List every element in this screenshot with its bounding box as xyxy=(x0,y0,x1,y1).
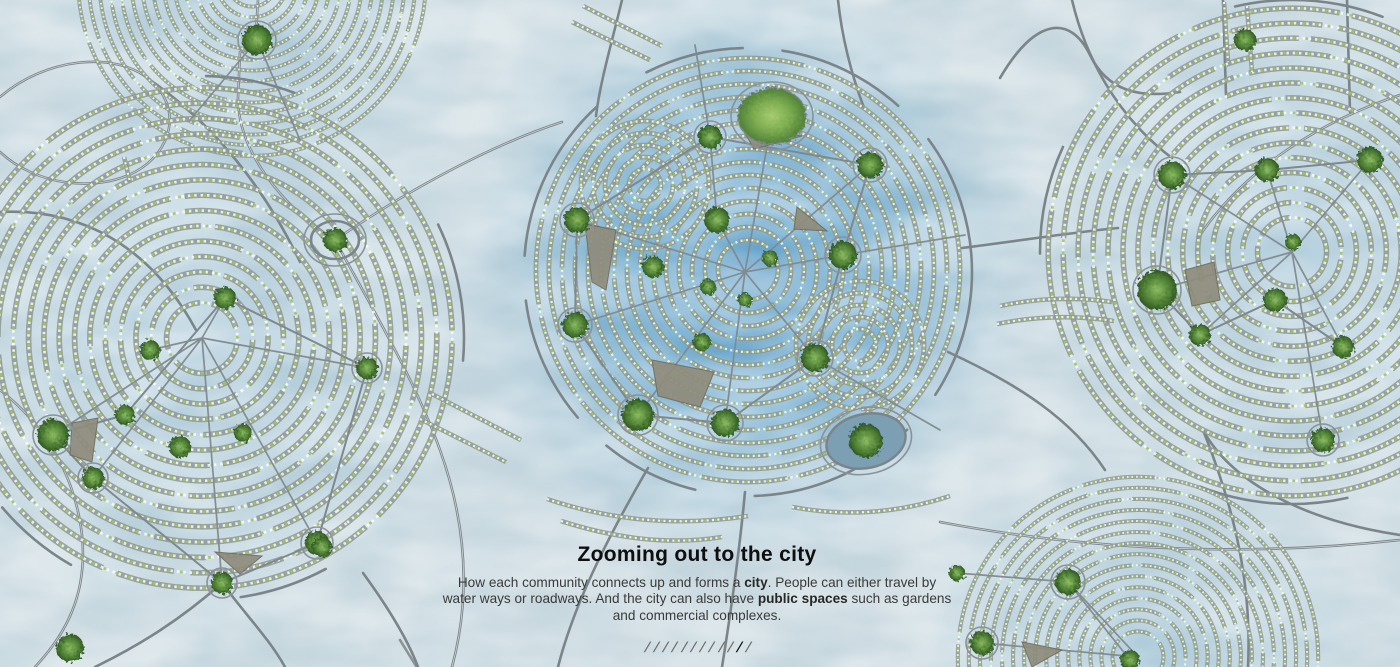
caption-body: How each community connects up and forms… xyxy=(441,575,953,626)
caption-title: Zooming out to the city xyxy=(357,543,1037,567)
caption-seg-0: How each community connects up and forms… xyxy=(458,575,744,590)
caption-seg-1: city xyxy=(744,575,767,590)
caption-block: Zooming out to the city How each communi… xyxy=(357,543,1037,625)
progress-tick[interactable]: / xyxy=(744,641,757,654)
caption-seg-3: public spaces xyxy=(758,591,848,606)
city-park xyxy=(731,82,813,150)
slide-stage: Zooming out to the city How each communi… xyxy=(0,0,1400,667)
slide-progress-indicator: //////////// xyxy=(0,641,1400,654)
